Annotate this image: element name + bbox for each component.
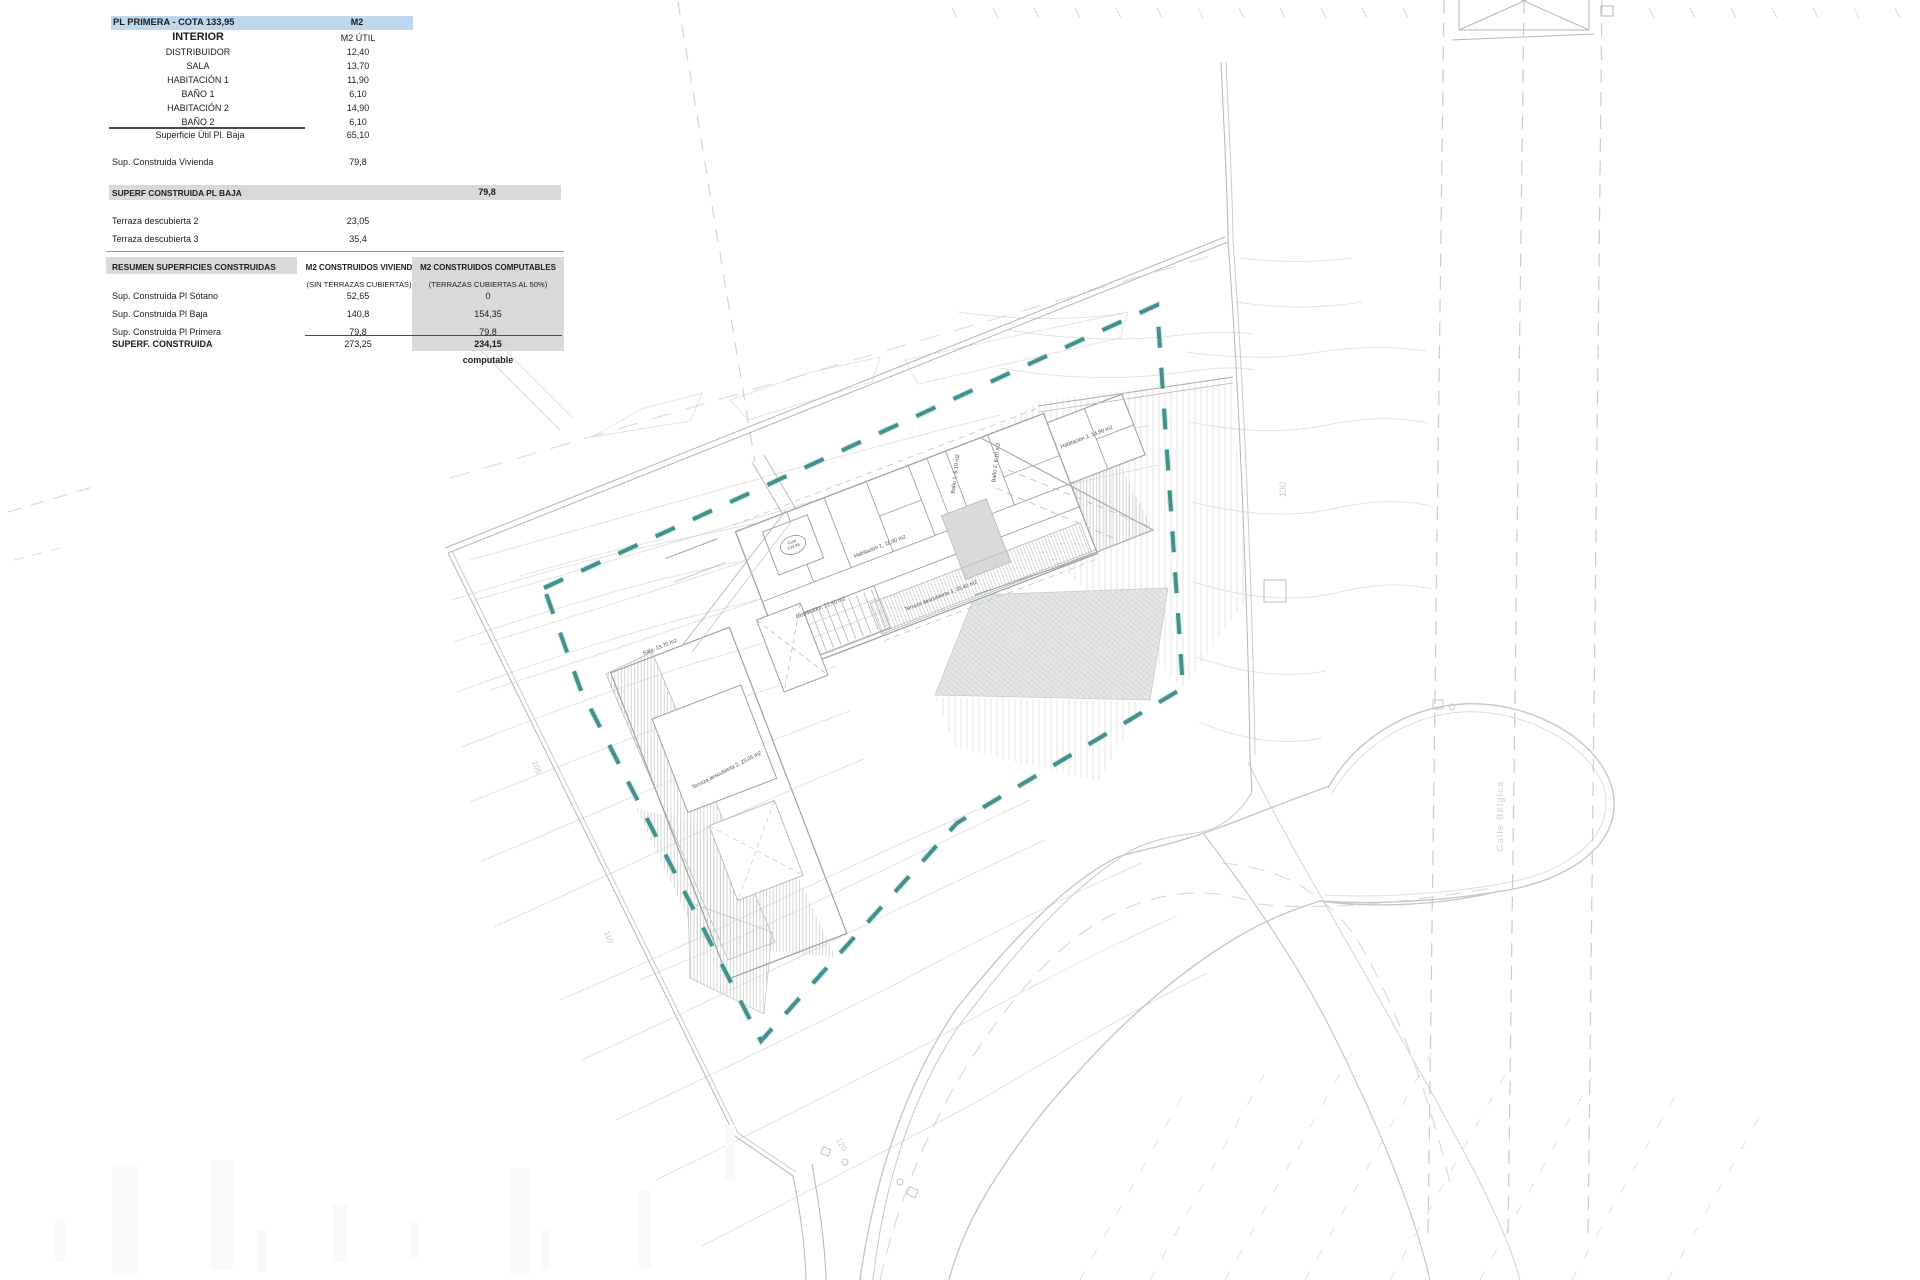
svg-text:110: 110 bbox=[602, 930, 615, 946]
svg-text:120: 120 bbox=[834, 1137, 849, 1154]
svg-text:Calle Bélgica: Calle Bélgica bbox=[1495, 780, 1506, 851]
svg-text:130: 130 bbox=[1278, 482, 1288, 497]
